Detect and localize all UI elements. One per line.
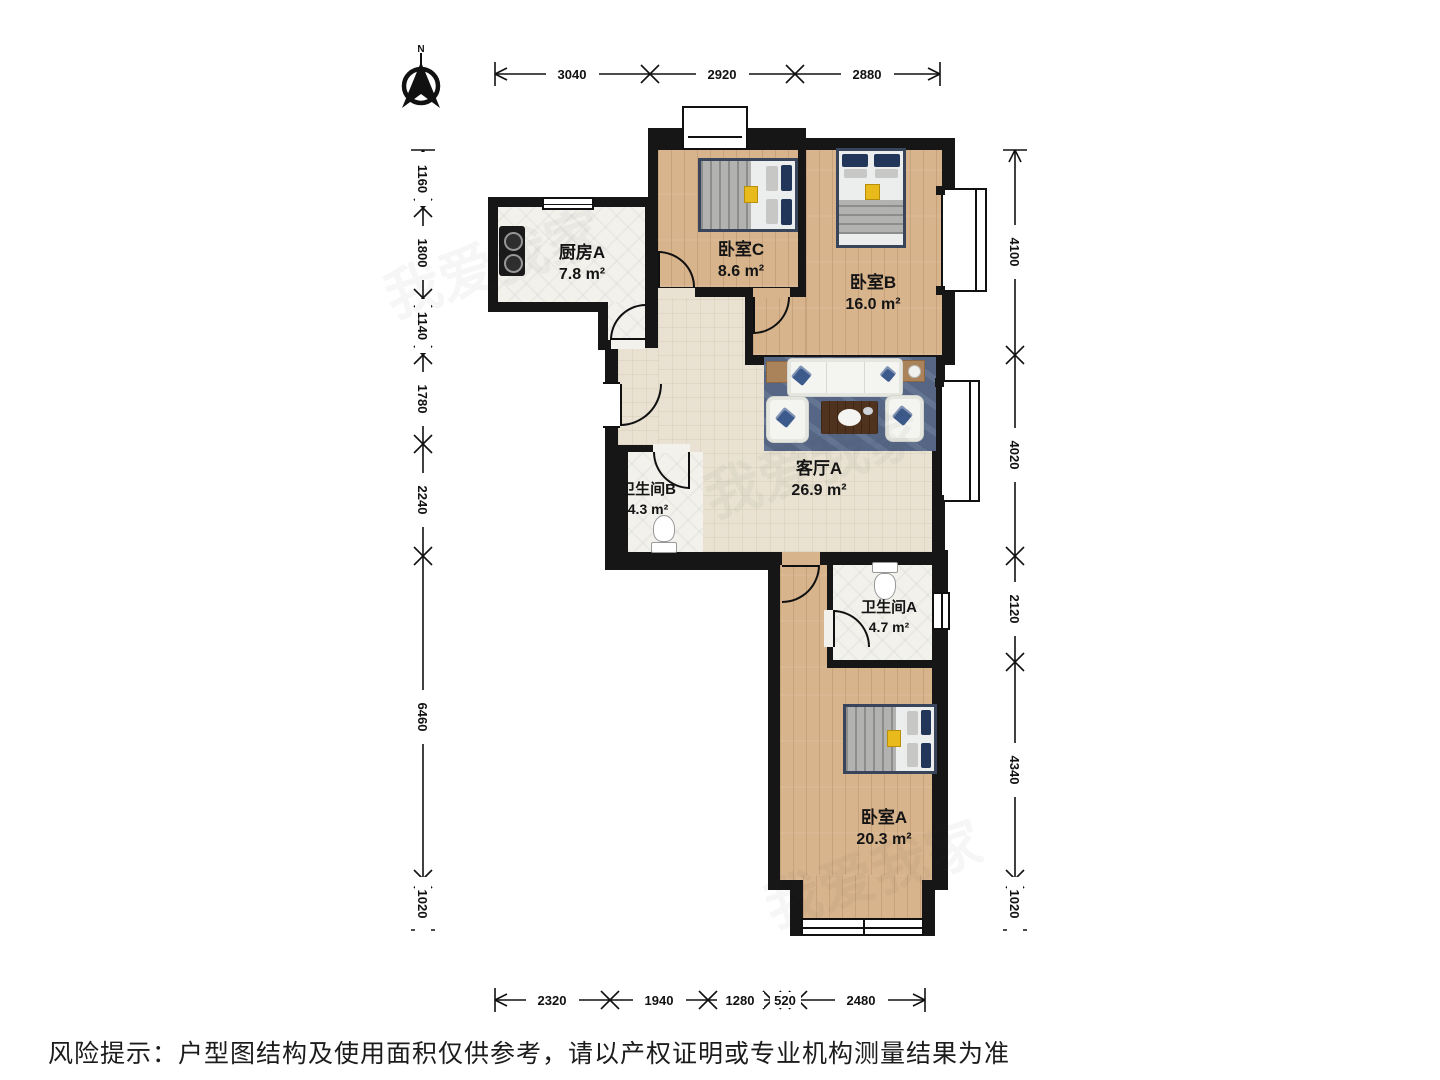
- wall-stub: [936, 186, 945, 195]
- dim-label: 1020: [1007, 890, 1022, 919]
- dim-label: 6460: [415, 703, 430, 732]
- floorplan-canvas: 厨房A 7.8 m² 卧室C 8.6 m² 卧室B 16.0 m² 客厅A 26…: [0, 0, 1440, 1080]
- dim-label: 1780: [415, 385, 430, 414]
- wall-stub: [936, 286, 945, 295]
- dimension-chain-left: 1160 1800 1140 1780 2240 6460 1020: [404, 140, 442, 940]
- side-table-icon: [902, 360, 925, 382]
- dim-label: 2480: [847, 993, 876, 1008]
- dim-label: 2240: [415, 486, 430, 515]
- sofa-icon: [787, 358, 903, 397]
- room-area: 7.8 m²: [559, 264, 605, 286]
- door-opening-bedroom-c: [658, 288, 695, 298]
- dim-label: 520: [774, 993, 796, 1008]
- armchair-icon: [766, 396, 809, 443]
- wall-stub: [935, 378, 944, 387]
- room-name: 厨房A: [559, 242, 605, 264]
- dim-label: 4100: [1007, 238, 1022, 267]
- door-opening-bedroom-a: [782, 552, 820, 566]
- room-label-living: 客厅A 26.9 m²: [791, 458, 846, 502]
- toilet-icon-bathroom-b: [651, 515, 677, 553]
- disclaimer-text: 风险提示：户型图结构及使用面积仅供参考，请以产权证明或专业机构测量结果为准: [48, 1034, 1010, 1070]
- dim-label: 2920: [708, 67, 737, 82]
- bed-icon-bedroom-b: [836, 148, 906, 248]
- window-bathroom-a: [932, 592, 950, 630]
- room-name: 卧室C: [718, 239, 764, 261]
- room-name: 卫生间A: [861, 598, 917, 618]
- room-label-bathroom-b: 卫生间B 4.3 m²: [620, 480, 676, 518]
- dim-label: 2120: [1007, 595, 1022, 624]
- north-compass-icon: N: [398, 40, 444, 112]
- room-name: 卧室B: [845, 272, 900, 294]
- room-label-bedroom-c: 卧室C 8.6 m²: [718, 239, 764, 283]
- room-label-kitchen: 厨房A 7.8 m²: [559, 242, 605, 286]
- door-opening-entry: [603, 382, 620, 428]
- window-kitchen: [542, 197, 594, 210]
- window-living-bay: [940, 380, 980, 502]
- dim-label: 2320: [538, 993, 567, 1008]
- dimension-chain-right: 4100 4020 2120 4340 1020: [996, 140, 1034, 940]
- dim-label: 3040: [558, 67, 587, 82]
- dim-label: 2880: [853, 67, 882, 82]
- room-label-bedroom-a: 卧室A 20.3 m²: [856, 807, 911, 851]
- room-name: 卧室A: [856, 807, 911, 829]
- toilet-icon-bathroom-a: [872, 562, 898, 600]
- dim-label: 1280: [726, 993, 755, 1008]
- stove-icon: [499, 226, 525, 276]
- room-area: 26.9 m²: [791, 480, 846, 502]
- room-area: 8.6 m²: [718, 261, 764, 283]
- room-name: 客厅A: [791, 458, 846, 480]
- bed-icon-bedroom-c: [698, 158, 798, 232]
- dim-label: 1020: [415, 890, 430, 919]
- room-area: 4.3 m²: [620, 499, 676, 518]
- dim-label: 1800: [415, 239, 430, 268]
- wall-stub: [935, 495, 944, 504]
- dim-label: 1140: [415, 312, 430, 340]
- armchair-icon: [885, 395, 924, 442]
- dimension-chain-top: 3040 2920 2880: [488, 58, 948, 90]
- dim-label: 1940: [645, 993, 674, 1008]
- room-label-bedroom-b: 卧室B 16.0 m²: [845, 272, 900, 316]
- room-area: 16.0 m²: [845, 294, 900, 316]
- dim-label: 4340: [1007, 756, 1022, 785]
- floor-bedroom-a-ext: [803, 875, 922, 922]
- dimension-chain-bottom: 2320 1940 1280 520 2480: [488, 984, 948, 1016]
- dim-label: 4020: [1007, 441, 1022, 470]
- bed-icon-bedroom-a: [843, 704, 937, 774]
- dim-label: 1160: [415, 165, 430, 193]
- room-name: 卫生间B: [620, 480, 676, 500]
- door-opening-kitchen: [611, 339, 645, 349]
- coffee-table-icon: [821, 401, 878, 434]
- window-bedroom-b-bay: [941, 188, 987, 292]
- room-area: 20.3 m²: [856, 829, 911, 851]
- room-label-bathroom-a: 卫生间A 4.7 m²: [861, 598, 917, 636]
- window-bedroom-c-bump: [682, 106, 748, 150]
- window-bedroom-a: [801, 918, 924, 936]
- room-area: 4.7 m²: [861, 617, 917, 636]
